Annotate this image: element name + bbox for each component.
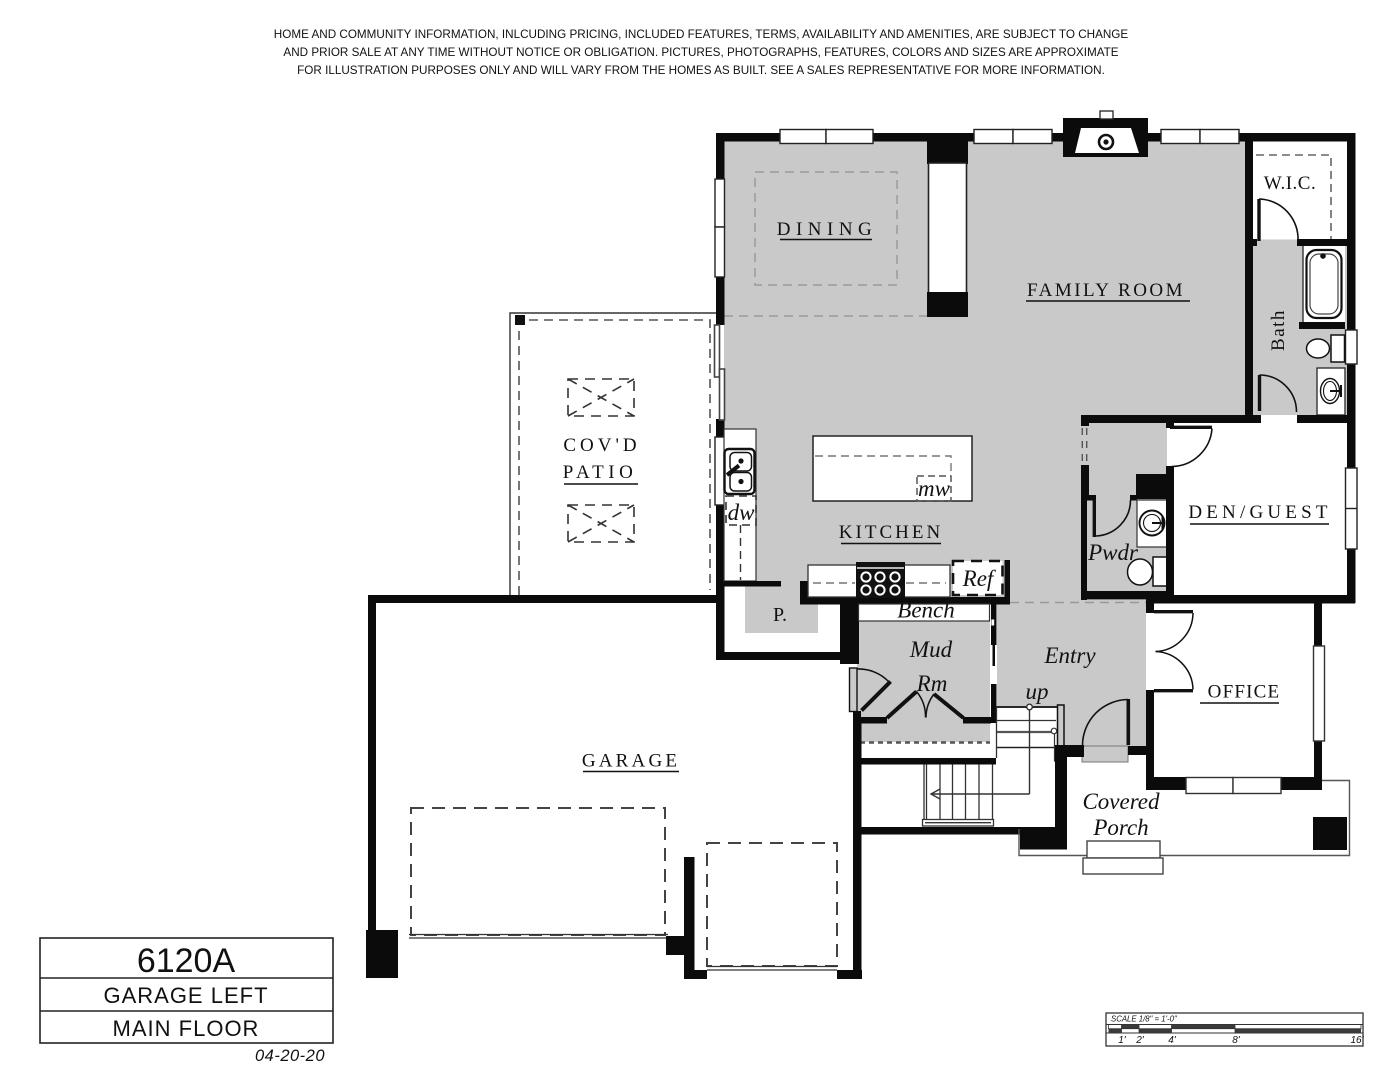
svg-text:FOR ILLUSTRATION PURPOSES ONLY: FOR ILLUSTRATION PURPOSES ONLY AND WILL …: [297, 64, 1105, 77]
svg-text:Porch: Porch: [1092, 815, 1148, 840]
svg-text:Entry: Entry: [1043, 643, 1096, 668]
svg-text:HOME AND COMMUNITY INFORMATION: HOME AND COMMUNITY INFORMATION, INLCUDIN…: [274, 28, 1129, 41]
svg-text:Mud: Mud: [909, 637, 953, 662]
svg-text:2': 2': [1135, 1035, 1145, 1046]
svg-text:DEN/GUEST: DEN/GUEST: [1188, 502, 1331, 523]
svg-text:W.I.C.: W.I.C.: [1264, 173, 1316, 194]
svg-text:GARAGE LEFT: GARAGE LEFT: [103, 983, 268, 1008]
svg-text:6120A: 6120A: [137, 942, 236, 980]
svg-text:mw: mw: [918, 476, 951, 501]
svg-text:Bath: Bath: [1268, 309, 1289, 351]
svg-text:1': 1': [1118, 1035, 1127, 1046]
svg-text:DINING: DINING: [777, 219, 878, 240]
svg-text:PATIO: PATIO: [563, 462, 638, 483]
svg-text:4': 4': [1168, 1035, 1177, 1046]
svg-text:Ref: Ref: [962, 566, 997, 591]
svg-text:16': 16': [1350, 1035, 1364, 1046]
svg-text:FAMILY ROOM: FAMILY ROOM: [1027, 280, 1185, 301]
svg-text:COV'D: COV'D: [563, 435, 640, 456]
svg-text:dw: dw: [728, 500, 756, 525]
svg-text:8': 8': [1232, 1035, 1241, 1046]
svg-text:P.: P.: [773, 604, 787, 626]
svg-text:AND PRIOR SALE AT ANY TIME WIT: AND PRIOR SALE AT ANY TIME WITHOUT NOTIC…: [283, 46, 1118, 59]
svg-text:up: up: [1026, 679, 1049, 704]
svg-text:04-20-20: 04-20-20: [255, 1047, 325, 1065]
svg-text:OFFICE: OFFICE: [1208, 682, 1281, 703]
svg-text:KITCHEN: KITCHEN: [839, 522, 943, 543]
svg-text:Rm: Rm: [916, 671, 948, 696]
svg-text:Bench: Bench: [897, 598, 954, 623]
svg-text:GARAGE: GARAGE: [582, 751, 680, 772]
svg-text:MAIN FLOOR: MAIN FLOOR: [113, 1016, 260, 1041]
svg-text:Pwdr: Pwdr: [1087, 540, 1139, 565]
svg-text:Covered: Covered: [1082, 789, 1160, 814]
svg-text:SCALE 1/8" = 1'-0": SCALE 1/8" = 1'-0": [1111, 1015, 1178, 1024]
